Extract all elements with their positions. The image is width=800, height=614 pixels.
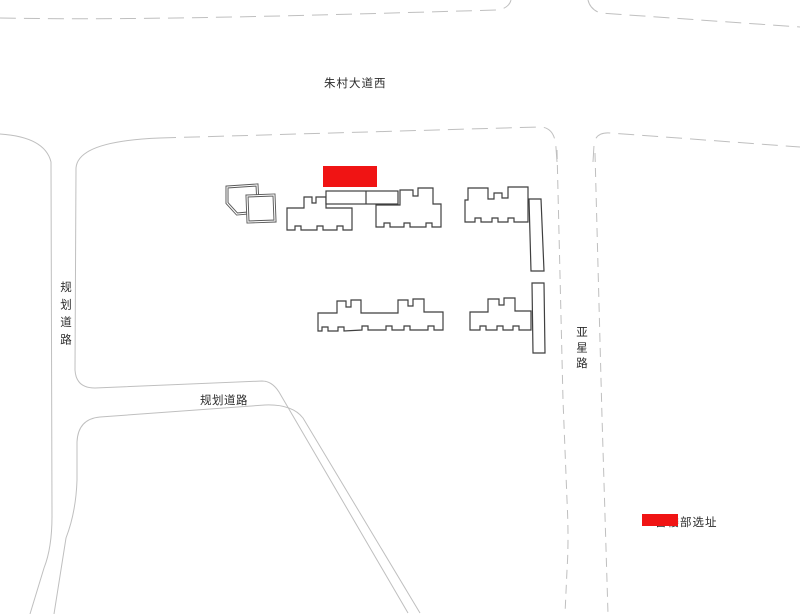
middle-road-label: 规划道路 — [200, 392, 248, 408]
site-plan-map: 朱村大道西 规划道路 规划道路 亚星路 售楼部选址 — [0, 0, 800, 614]
top-road-lower-edge-right — [593, 133, 800, 162]
building-row1-east-slab — [465, 187, 528, 222]
building-row1-wing — [529, 199, 544, 271]
middle-road-lower-and-left-road-lower — [54, 405, 420, 614]
sales-office-site-marker — [323, 166, 377, 187]
left-road-west-edge — [0, 134, 52, 614]
top-road-upper-edge-right — [588, 0, 800, 27]
legend-swatch-icon — [642, 514, 678, 526]
top-road-upper-edge-left — [0, 0, 511, 19]
top-road-label: 朱村大道西 — [324, 75, 387, 91]
left-road-label: 规划道路 — [57, 281, 73, 351]
top-road-lower-edge — [160, 127, 557, 162]
building-footprints — [227, 185, 545, 353]
building-row2-bar — [532, 283, 545, 353]
building-small-west — [227, 185, 275, 222]
legend: 售楼部选址 — [642, 514, 718, 530]
building-row2-left-slab — [318, 299, 443, 331]
yaxing-road-west-edge — [557, 150, 568, 614]
building-row1-strip — [326, 191, 398, 204]
yaxing-road-east-edge — [595, 153, 608, 614]
building-row2-right-slab — [470, 298, 531, 330]
right-road-label: 亚星路 — [573, 326, 589, 373]
